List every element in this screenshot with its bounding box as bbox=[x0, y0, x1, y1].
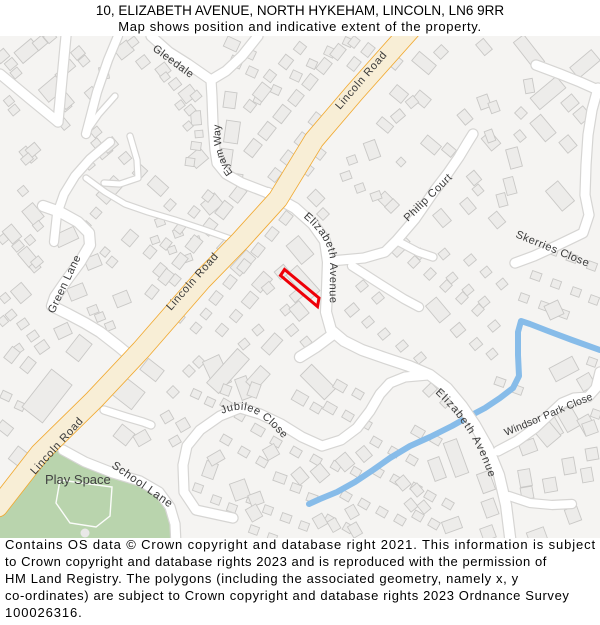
svg-text:Play Space: Play Space bbox=[45, 472, 111, 487]
